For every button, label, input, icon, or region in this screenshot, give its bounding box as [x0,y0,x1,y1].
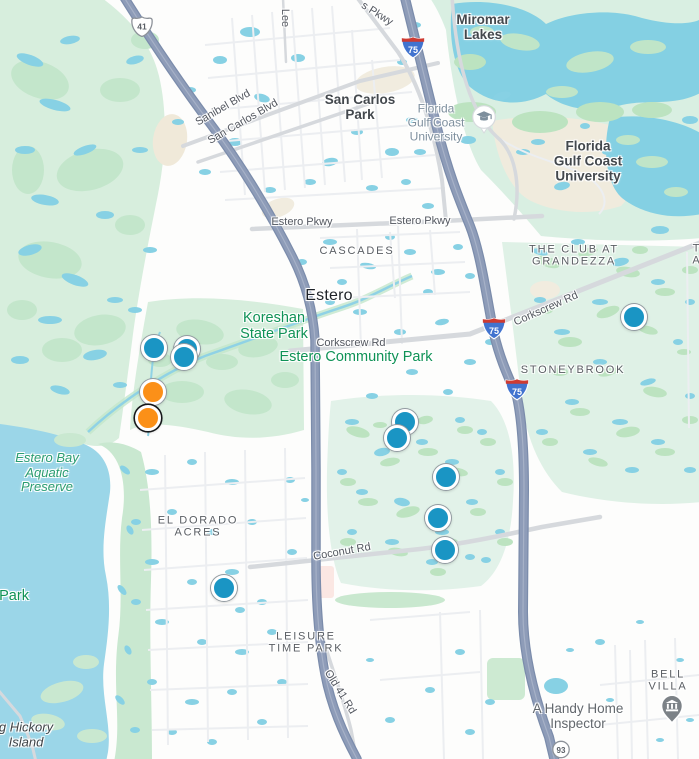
place-label-club-at-grandezza: THE CLUB AT GRANDEZZA [529,244,619,269]
island-label-hickory: g Hickory Island [0,720,53,749]
university-pin[interactable] [471,104,498,140]
listing-marker-blue[interactable] [211,575,237,601]
interstate-75-shield-icon: 75 [482,318,506,345]
road-label-lee: Lee [279,9,291,27]
svg-text:93: 93 [557,746,566,755]
place-label-stoneybrook: STONEYBROOK [521,364,626,376]
place-label-leisure-time-park: LEISURE TIME PARK [269,631,344,656]
place-label-cascades: CASCADES [320,245,395,257]
place-label-estero: Estero [305,287,352,305]
svg-text:41: 41 [137,22,147,32]
svg-text:75: 75 [408,45,418,55]
svg-text:75: 75 [489,326,499,336]
listing-marker-blue[interactable] [141,335,167,361]
listing-marker-blue[interactable] [433,464,459,490]
road-label-coconut-rd: Coconut Rd [312,541,371,563]
road-label-corkscrew-rd-east: Corkscrew Rd [512,289,580,328]
road-label-corkscrew-rd: Corkscrew Rd [316,337,385,349]
park-label-clipped-left: e Park [0,588,29,604]
building-pin-icon [659,693,686,724]
listing-marker-blue[interactable] [432,537,458,563]
listing-marker-orange[interactable] [140,379,166,405]
interstate-75-shield-icon: 75 [401,37,425,64]
road-label-sanibel-blvd: Sanibel Blvd [193,87,252,128]
us-route-41-shield-icon: 41 [131,16,153,42]
water-label-estero-bay: Estero Bay Aquatic Preserve [15,451,79,495]
road-label-oaks-pkwy: s Pkwy [359,0,395,28]
listing-marker-blue[interactable] [171,344,197,370]
place-label-fgcu-area: Florida Gulf Coast University [554,138,622,183]
place-label-clipped-right: T A [692,243,699,268]
poi-label-handy-home-inspector: A Handy Home Inspector [518,701,639,731]
graduation-cap-icon [471,104,498,135]
road-label-estero-pkwy-east: Estero Pkwy [389,215,450,227]
poi-label-fgcu: Florida Gulf Coast University [408,102,465,143]
place-label-el-dorado-acres: EL DORADO ACRES [158,515,239,540]
road-label-estero-pkwy-west: Estero Pkwy [271,216,332,228]
place-label-san-carlos-park: San Carlos Park [325,92,396,122]
place-label-miromar-lakes: Miromar Lakes [456,12,509,42]
place-label-bell-villa: BELL VILLA [649,669,688,694]
home-inspector-pin[interactable] [659,693,686,729]
listing-marker-blue[interactable] [384,425,410,451]
road-label-old-41-rd: Old 41 Rd [322,668,359,717]
svg-text:75: 75 [512,387,522,397]
map-canvas[interactable]: Lees PkwyMiromar LakesSanibel BlvdSan Ca… [0,0,699,759]
listing-marker-blue[interactable] [425,505,451,531]
state-route-93-shield-icon: 93 [552,740,571,759]
road-label-san-carlos-blvd: San Carlos Blvd [206,97,280,147]
park-label-koreshan: Koreshan State Park [240,310,308,342]
listing-marker-orange-selected[interactable] [135,405,161,431]
park-label-estero-community-park: Estero Community Park [279,349,432,365]
interstate-75-shield-icon: 75 [505,379,529,406]
listing-marker-blue[interactable] [621,304,647,330]
